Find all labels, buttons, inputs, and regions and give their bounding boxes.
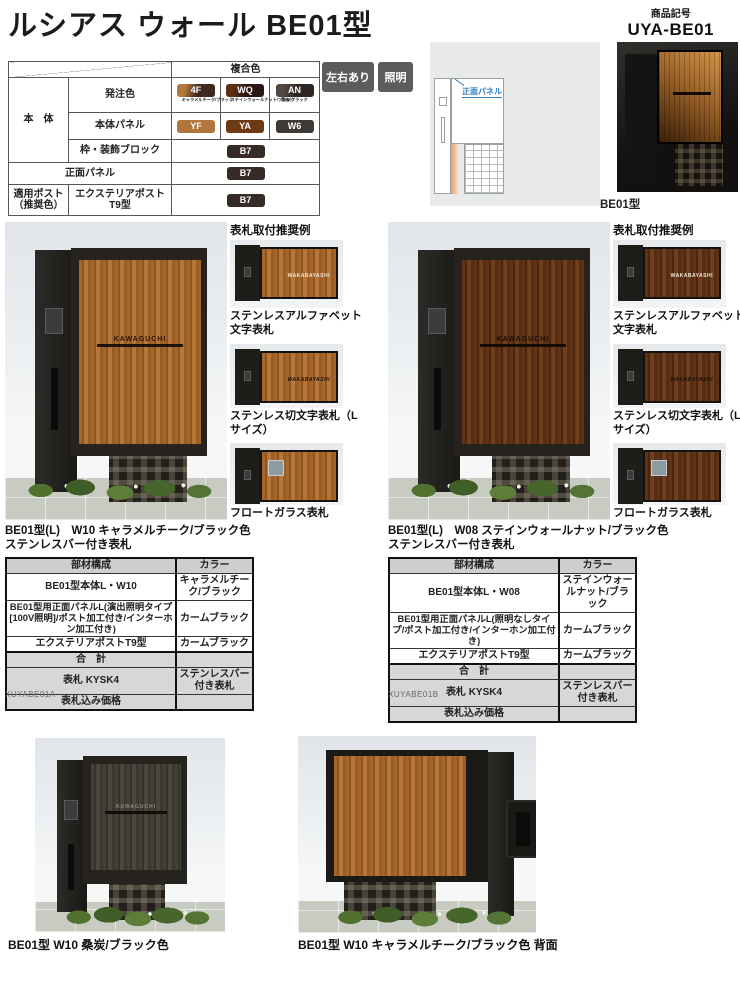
body-panel-label: 本体パネル [69,113,172,140]
table-row: BE01型本体L・W10 キャラメルチーク/ブラック [6,574,253,601]
diagram-front-panel: 正面パネル [451,78,504,144]
nameplate: KAWAGUCHI [97,336,183,347]
nameplate-caption-alphabet: ステンレスアルファベット文字表札 [230,310,368,338]
product-code: UYA-BE01 [627,20,714,40]
color-chip-an: AN [276,84,314,97]
nameplate-examples-title: 表札取付推奨例 [613,222,694,238]
color-chip-ya: YA [226,120,264,133]
glass-nameplate [651,460,667,476]
table-code: XUYABE01A [5,690,56,699]
section-w10: KAWAGUCHI 表札取付推奨例 WAKABAYASHI ステンレスアルファベ… [2,222,358,697]
nameplate-caption-cutletter: ステンレス切文字表札（Lサイズ） [230,410,368,438]
planting [61,904,209,928]
table-row: BE01型用正面パネルL(照明なしタイプ/ポスト加工付き/インターホン加工付き)… [389,613,636,649]
color-chip-yf: YF [177,120,215,133]
post-slot [68,844,74,890]
post-model-label: エクステリアポスト T9型 [69,185,172,216]
nameplate-caption-glass: フロートガラス表札 [613,507,740,521]
color-name-an: 桑炭/ブラック [280,98,309,103]
photo-caption-line2: ステンレスバー付き表札 [5,538,357,552]
nameplate-bar [97,344,183,347]
color-chip-b7-post: B7 [227,194,265,207]
order-color-4f: 4F キャラメルチーク/ブラック [172,78,221,113]
wood-panel-back [334,756,466,876]
wood-panel: KAWAGUCHI [91,764,181,870]
post-slot [434,368,441,430]
thumb-interphone [244,267,251,277]
mailbox [506,800,536,858]
table-row-total: 合 計 [6,652,253,668]
mailbox-door [516,812,530,846]
col-header-parts: 部材構成 [6,558,176,574]
lighting-info-panel: 正面パネル 演出照明タイプ 100Vタイプ 24Vタイプ [430,42,600,206]
diagram-interphone [439,97,447,106]
glass-nameplate [268,460,284,476]
hero-product-photo [617,42,738,192]
nameplate-text: KAWAGUCHI [114,336,167,343]
front-panel-label: 正面パネル [462,86,502,98]
bottom-photo-back-view [298,736,536,933]
product-code-label: 商品記号 [627,5,714,20]
nameplate-thumb-glass [613,443,726,505]
diagram-post [434,78,451,194]
order-color-label: 発注色 [69,78,172,113]
color-spec-table: 複合色 本 体 発注色 4F キャラメルチーク/ブラック WQ ステインウォール… [8,61,320,216]
nameplate-caption-glass: フロートガラス表札 [230,507,368,521]
product-photo-w08: KAWAGUCHI [388,222,610,520]
diagram-slot [441,117,445,143]
tag-both-sides: 左右あり [322,62,374,92]
photo-caption: BE01型(L) W10 キャラメルチーク/ブラック色 ステンレスバー付き表札 [5,524,357,553]
bottom-caption-back: BE01型 W10 キャラメルチーク/ブラック色 背面 [298,936,558,953]
nameplate-text: KAWAGUCHI [497,336,550,343]
interphone [64,800,78,820]
front-panel-row-label: 正面パネル [9,163,172,185]
diagram-lattice [464,144,504,194]
hero-nameplate [673,92,711,95]
thumb-nameplate-text: WAKABAYASHI [288,273,330,279]
table-row-total: 合 計 [389,664,636,680]
diagram-pointer-line [455,79,465,86]
table-row: BE01型本体L・W08 ステインウォールナット/ブラック [389,574,636,613]
table-row: エクステリアポストT9型 カームブラック [6,637,253,653]
color-name-4f: キャラメルチーク/ブラック [182,98,211,103]
col-header-color: カラー [176,558,253,574]
table-code: XUYABE01B [388,690,439,699]
thumb-nameplate-text: WAKABAYASHI [671,273,713,279]
bottom-caption-charcoal: BE01型 W10 桑炭/ブラック色 [8,936,169,953]
section-w08: KAWAGUCHI 表札取付推奨例 WAKABAYASHI ステンレスアルファベ… [385,222,740,697]
color-chip-b7-block: B7 [227,145,265,158]
color-chip-wq: WQ [226,84,264,97]
nameplate-examples-title: 表札取付推奨例 [230,222,311,238]
photo-caption-line1: BE01型(L) W10 キャラメルチーク/ブラック色 [5,524,357,538]
post-row-label: 適用ポスト（推奨色） [9,185,69,216]
order-color-wq: WQ ステインウォールナット/ブラック [221,78,270,113]
page-title: ルシアス ウォール BE01型 [8,2,373,44]
product-code-block: 商品記号 UYA-BE01 [627,5,714,40]
interphone [428,308,446,334]
table-row: エクステリアポストT9型 カームブラック [389,649,636,665]
wood-panel: KAWAGUCHI [462,260,584,444]
components-table-w10: 部材構成 カラー BE01型本体L・W10 キャラメルチーク/ブラック BE01… [5,557,254,711]
nameplate-caption-alphabet: ステンレスアルファベット文字表札 [613,310,740,338]
hero-caption: BE01型 [600,196,640,212]
nameplate: KAWAGUCHI [480,336,566,347]
table-row: 表札込み価格 [389,707,636,723]
photo-caption: BE01型(L) W08 ステインウォールナット/ブラック色 ステンレスバー付き… [388,524,740,553]
hero-lattice-block [675,144,723,186]
body-row-label: 本 体 [9,78,69,163]
nameplate-bar [480,344,566,347]
wood-panel: KAWAGUCHI [79,260,201,444]
nameplate-caption-cutletter: ステンレス切文字表札（Lサイズ） [613,410,740,438]
composite-color-header: 複合色 [172,62,320,78]
post-slot [51,368,58,430]
product-photo-w10: KAWAGUCHI [5,222,227,520]
color-name-wq: ステインウォールナット/ブラック [231,98,260,103]
color-chip-w6: W6 [276,120,314,133]
catalog-page: ルシアス ウォール BE01型 商品記号 UYA-BE01 複合色 本 体 発注… [0,0,740,992]
bottom-photo-charcoal: KAWAGUCHI [35,738,225,932]
thumb-cutletter-text: WAKABAYASHI [287,377,330,383]
col-header-color: カラー [559,558,636,574]
frame-block-label: 枠・装飾ブロック [69,140,172,163]
order-color-an: AN 桑炭/ブラック [270,78,320,113]
nameplate-thumb-glass [230,443,343,505]
thumb-cutletter-text: WAKABAYASHI [670,377,713,383]
thumb-wood-panel: WAKABAYASHI [260,247,338,299]
interphone [45,308,63,334]
nameplate-thumb-alphabet: WAKABAYASHI [613,240,726,308]
tag-lighting: 照明 [378,62,413,92]
front-panel-diagram: 正面パネル [434,78,504,194]
planting [17,474,215,504]
nameplate-thumb-cutletter: WAKABAYASHI [230,344,343,408]
table-row: BE01型用正面パネルL(演出照明タイプ[100V照明]/ポスト加工付き/インタ… [6,601,253,637]
planting [400,474,598,504]
nameplate-thumb-cutletter: WAKABAYASHI [613,344,726,408]
planting [328,903,514,929]
hero-post [625,54,657,184]
spec-corner-cell [9,62,172,78]
color-chip-b7-front: B7 [227,167,265,180]
nameplate: KAWAGUCHI [105,804,167,814]
hero-wood-panel [657,50,723,144]
nameplate-thumb-alphabet: WAKABAYASHI [230,240,343,308]
thumb-post [235,245,260,301]
photo-caption-line1: BE01型(L) W08 ステインウォールナット/ブラック色 [388,524,740,538]
col-header-parts: 部材構成 [389,558,559,574]
photo-caption-line2: ステンレスバー付き表札 [388,538,740,552]
color-chip-4f: 4F [177,84,215,97]
